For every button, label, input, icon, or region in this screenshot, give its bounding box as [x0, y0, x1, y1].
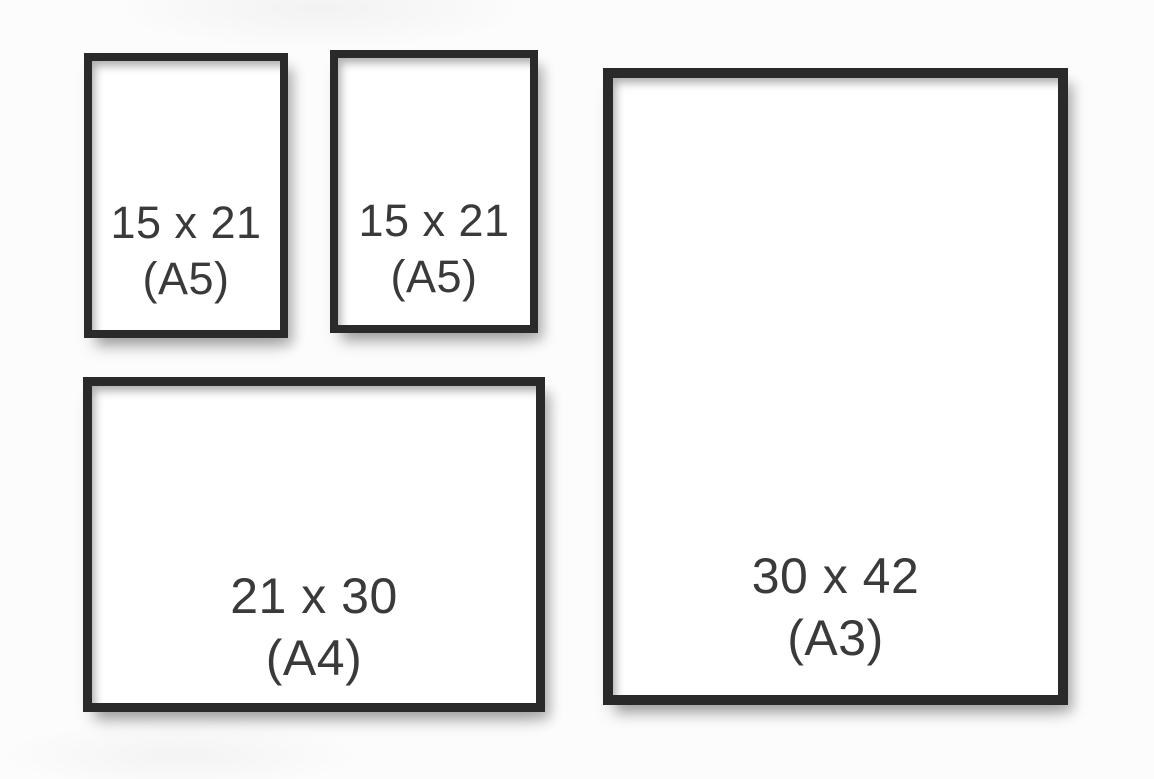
frame-a5-left-label: 15 x 21 (A5): [92, 195, 280, 307]
format-text: (A5): [338, 249, 530, 305]
frame-a4-label: 21 x 30 (A4): [92, 565, 536, 689]
size-text: 15 x 21: [92, 195, 280, 251]
frame-a5-middle-label: 15 x 21 (A5): [338, 193, 530, 305]
frame-a3-label: 30 x 42 (A3): [613, 545, 1058, 669]
size-text: 30 x 42: [613, 545, 1058, 607]
format-text: (A4): [92, 627, 536, 689]
frame-a3: 30 x 42 (A3): [603, 68, 1068, 705]
format-text: (A5): [92, 251, 280, 307]
frame-a4: 21 x 30 (A4): [83, 377, 545, 712]
frame-size-chart: 15 x 21 (A5) 15 x 21 (A5) 21 x 30 (A4) 3…: [0, 0, 1154, 779]
format-text: (A3): [613, 607, 1058, 669]
size-text: 15 x 21: [338, 193, 530, 249]
size-text: 21 x 30: [92, 565, 536, 627]
frame-a5-middle: 15 x 21 (A5): [330, 50, 538, 333]
frame-a5-left: 15 x 21 (A5): [84, 53, 288, 338]
